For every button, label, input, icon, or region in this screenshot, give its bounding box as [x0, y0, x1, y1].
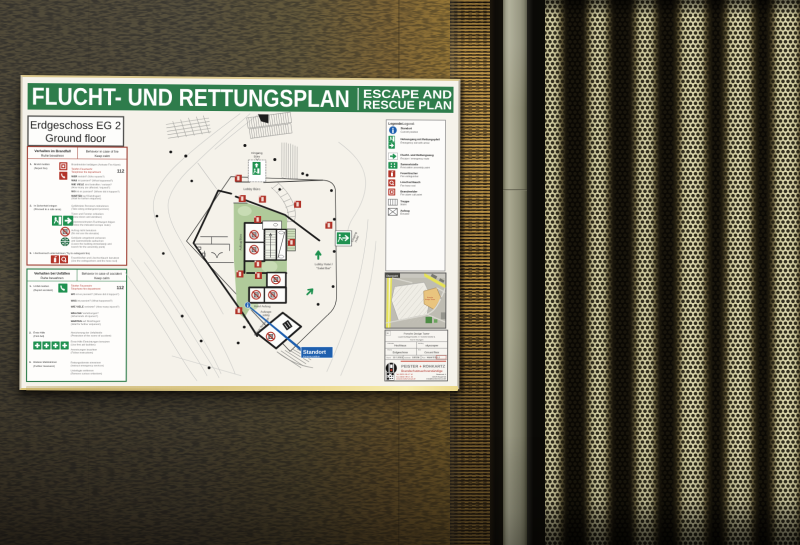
svg-text:Weitere Maßnahmen: Weitere Maßnahmen	[33, 361, 57, 364]
svg-text:Ground floor: Ground floor	[45, 133, 106, 145]
svg-text:112: 112	[117, 169, 125, 174]
svg-text:Ground floor: Ground floor	[424, 351, 439, 354]
svg-text:1.: 1.	[30, 163, 32, 166]
svg-text:Erdgeschoss: Erdgeschoss	[393, 351, 409, 354]
svg-text:RESCUE PLAN: RESCUE PLAN	[363, 98, 452, 113]
svg-text:3.: 3.	[29, 361, 31, 364]
svg-text:(Further measures): (Further measures)	[33, 365, 55, 368]
svg-text:skyscraper: skyscraper	[425, 345, 438, 348]
svg-text:(Instruct emergency services): (Instruct emergency services)	[71, 364, 104, 367]
svg-text:Hochhaus: Hochhaus	[394, 345, 407, 348]
svg-text:(How many are affected / injur: (How many are affected / injured?)	[71, 186, 110, 189]
svg-text:Fire alarm call point: Fire alarm call point	[400, 194, 422, 197]
svg-text:Escape / emergency route: Escape / emergency route	[400, 157, 429, 160]
svg-text:Emergency exit with arrow: Emergency exit with arrow	[401, 141, 430, 144]
svg-text:WER meldet? (Who reports?): WER meldet? (Who reports?)	[71, 175, 104, 178]
svg-text:70173 Stuttgart: 70173 Stuttgart	[410, 338, 424, 341]
svg-text:Current position: Current position	[401, 131, 419, 134]
svg-text:Ruhe bewahren: Ruhe bewahren	[41, 276, 64, 280]
svg-text:(Wait for further enquiries!): (Wait for further enquiries!)	[71, 323, 101, 326]
svg-text:Legend:: Legend:	[403, 122, 415, 126]
svg-text:WO ist es passiert? (Where did: WO ist es passiert? (Where did it happen…	[71, 293, 119, 296]
svg-text:(Take along endangered persons: (Take along endangered persons)	[71, 208, 109, 211]
svg-text:(Report fire): (Report fire)	[34, 167, 48, 170]
svg-text:FLUCHT- UND RETTUNGSPLAN: FLUCHT- UND RETTUNGSPLAN	[32, 84, 350, 113]
svg-text:Porsche Design Tower: Porsche Design Tower	[404, 332, 430, 335]
svg-text:Keep calm: Keep calm	[95, 154, 111, 158]
svg-text:2.: 2.	[29, 331, 31, 334]
svg-text:WO ist es passiert? (Where did: WO ist es passiert? (Where did it happen…	[71, 190, 119, 193]
svg-text:Hotel EG2.2: Hotel EG2.2	[427, 356, 441, 359]
svg-text:(Proceed to a safe area): (Proceed to a safe area)	[34, 208, 61, 211]
svg-text:Löschversuch unternehmen (Try: Löschversuch unternehmen (Try to extingu…	[34, 252, 90, 255]
svg-text:Design Tower: Design Tower	[425, 298, 435, 301]
svg-text:(Close doors and windows): (Close doors and windows)	[71, 216, 102, 219]
svg-text:100/28: 100/28	[412, 356, 420, 359]
svg-text:Unfall melden: Unfall melden	[33, 285, 49, 288]
svg-text:Hotel Aufzug: Hotel Aufzug	[254, 304, 271, 308]
svg-text:WIE VIELE verletzte? (How many: WIE VIELE verletzte? (How many injured?)	[71, 306, 120, 309]
svg-text:Fire extinguisher: Fire extinguisher	[400, 175, 418, 178]
svg-text:(Use the extinguishers and fir: (Use the extinguishers and fire hose ree…	[71, 260, 117, 263]
svg-text:info@brandschutz-pr.de: info@brandschutz-pr.de	[426, 378, 446, 381]
svg-text:Elevator: Elevator	[400, 213, 409, 216]
svg-text:Erste Hilfe: Erste Hilfe	[33, 331, 45, 334]
svg-text:(Report accident): (Report accident)	[33, 289, 53, 292]
svg-text:112: 112	[116, 285, 124, 290]
svg-text:(First Aid): (First Aid)	[33, 335, 44, 338]
svg-text:(Follow the indicated escape r: (Follow the indicated escape route)	[71, 224, 110, 227]
svg-text:Übersicht: Übersicht	[386, 274, 398, 278]
svg-text:Büro: Büro	[254, 154, 261, 158]
svg-text:1.: 1.	[29, 285, 31, 288]
svg-text:(What kinds of injuries?): (What kinds of injuries?)	[71, 315, 98, 318]
svg-text:Brandmelder betätigen (Activat: Brandmelder betätigen (Activate Fire Ala…	[71, 163, 120, 166]
svg-text:Brand melden: Brand melden	[34, 163, 50, 166]
svg-text:10 / 2023: 10 / 2023	[393, 356, 404, 359]
svg-text:Telephone fire department: Telephone fire department	[71, 288, 101, 291]
svg-text:In Sicherheit bringen: In Sicherheit bringen	[34, 204, 58, 207]
svg-text:Evacuation assembly point: Evacuation assembly point	[400, 166, 430, 169]
svg-text:3.: 3.	[30, 252, 32, 255]
svg-text:Lautenschlagerstraße 2 / Somme: Lautenschlagerstraße 2 / Sommerstraße 4	[398, 336, 436, 339]
svg-text:N: N	[387, 332, 389, 335]
svg-text:(Do not use the elevator): (Do not use the elevator)	[71, 232, 99, 235]
svg-text:Keep calm: Keep calm	[94, 276, 110, 280]
svg-text:Stairs: Stairs	[400, 203, 407, 206]
svg-text:(Wait for further enquiries!): (Wait for further enquiries!)	[71, 197, 101, 200]
svg-text:Aufzug Büro: Aufzug Büro	[239, 234, 243, 251]
svg-text:(Use first aid facilities): (Use first aid facilities)	[71, 343, 96, 346]
svg-text:Lobby Büro: Lobby Büro	[243, 187, 260, 191]
svg-text:Erdgeschoss EG 2: Erdgeschoss EG 2	[30, 120, 121, 133]
svg-text:Plan: Plan	[422, 356, 425, 359]
svg-text:WAS ist passiert? (What happen: WAS ist passiert? (What happened?)	[71, 179, 113, 182]
svg-text:Telephone fire department: Telephone fire department	[71, 171, 101, 174]
svg-text:Stand: Stand	[386, 356, 390, 359]
svg-text:Current position: Current position	[303, 355, 320, 358]
svg-text:Ruhe bewahren: Ruhe bewahren	[41, 153, 64, 157]
svg-text:Legende:: Legende:	[388, 122, 403, 126]
svg-text:WAS ist passiert? (What happen: WAS ist passiert? (What happened?)	[71, 299, 113, 302]
svg-text:Brandschutzsachverständige: Brandschutzsachverständige	[401, 369, 443, 373]
svg-text:Maßstab: Maßstab	[404, 356, 411, 359]
svg-text:(Follow instructions): (Follow instructions)	[71, 352, 94, 355]
svg-text:(Remove curious onlookers): (Remove curious onlookers)	[71, 373, 103, 376]
svg-text:2.: 2.	[30, 204, 32, 207]
svg-text:search for the assembly point): search for the assembly point)	[71, 246, 105, 249]
svg-text:(Protection of the scene of ac: (Protection of the scene of accident)	[71, 334, 112, 337]
svg-text:www.brandschutz-pr.de: www.brandschutz-pr.de	[396, 378, 415, 381]
svg-text:Fire hose reel: Fire hose reel	[400, 184, 416, 187]
svg-text:“Salat Bar”: “Salat Bar”	[316, 266, 331, 270]
